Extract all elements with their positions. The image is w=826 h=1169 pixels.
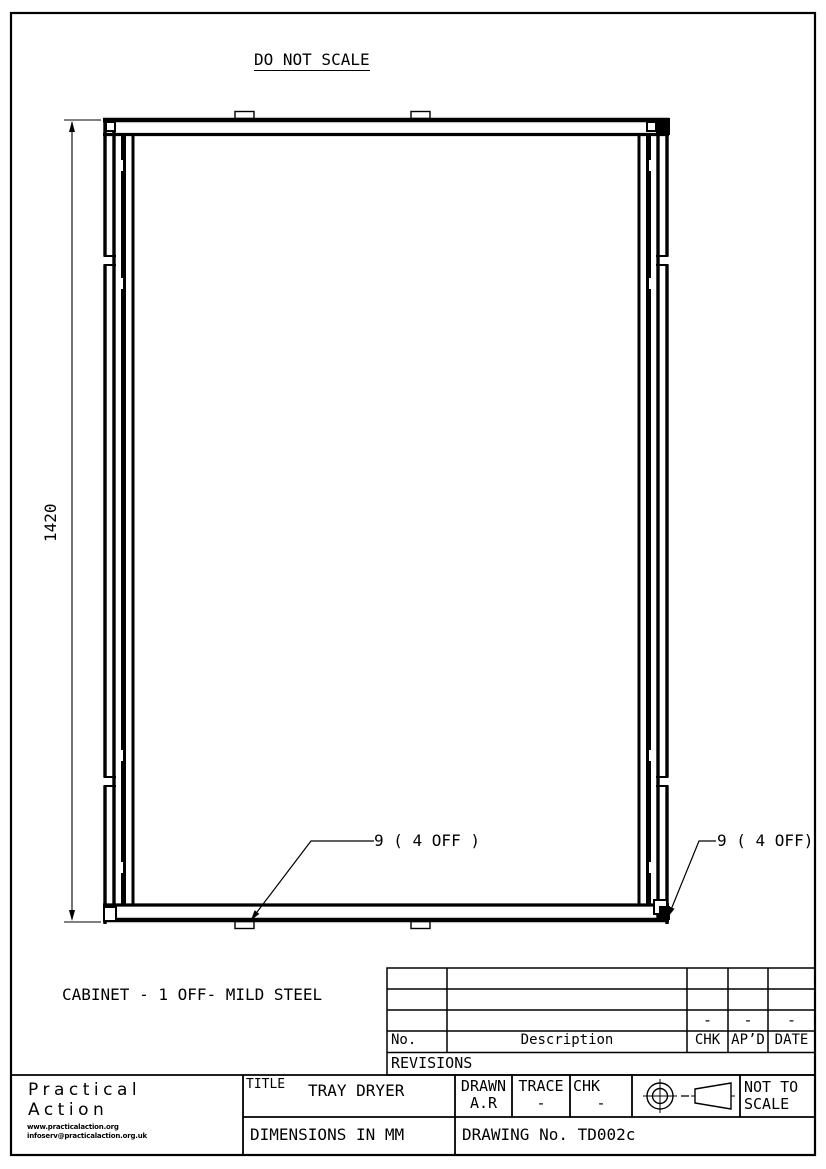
scale-note-line2: SCALE [744, 1096, 789, 1113]
part-caption: CABINET - 1 OFF- MILD STEEL [62, 986, 322, 1004]
callout-right-text: 9 ( 4 OFF) [717, 832, 813, 850]
title-label: TITLE [246, 1078, 285, 1092]
callout-left-text: 9 ( 4 OFF ) [374, 832, 480, 850]
org-name-line1: Practical [28, 1081, 141, 1100]
org-email: infoserv@practicalaction.org.uk [27, 1133, 147, 1141]
revisions-col-chk: CHK [687, 1033, 728, 1048]
do-not-scale-note: DO NOT SCALE [254, 51, 370, 71]
corner-gussets [104, 122, 670, 921]
revisions-col-date: DATE [768, 1033, 815, 1048]
revision-chk-dash: - [687, 1012, 728, 1029]
revisions-col-apd: AP’D [728, 1033, 768, 1048]
dimensions-note: DIMENSIONS IN MM [250, 1126, 404, 1144]
projection-symbol-icon [643, 1079, 735, 1113]
dimension-1420-text: 1420 [42, 503, 60, 542]
drawn-value: A.R [455, 1095, 512, 1112]
revisions-col-description: Description [447, 1033, 687, 1048]
revision-apd-dash: - [728, 1012, 768, 1029]
title-value: TRAY DRYER [308, 1082, 404, 1100]
chk-value: - [570, 1095, 632, 1112]
drawn-label: DRAWN [455, 1078, 512, 1095]
dimension-1420 [64, 120, 101, 922]
revisions-label: REVISIONS [391, 1055, 472, 1072]
drawing-number: DRAWING No. TD002c [462, 1126, 635, 1144]
org-url: www.practicalaction.org [27, 1124, 119, 1132]
right-post [639, 118, 670, 924]
trace-value: - [512, 1095, 570, 1112]
drawing-sheet: DO NOT SCALE 1420 9 ( 4 OFF ) 9 ( 4 OFF)… [0, 0, 826, 1169]
chk-label: CHK [573, 1078, 600, 1095]
org-name-line2: Action [28, 1101, 108, 1120]
left-post [104, 118, 134, 924]
revision-date-dash: - [768, 1012, 815, 1029]
fixing-tabs [235, 112, 430, 929]
trace-label: TRACE [512, 1078, 570, 1095]
leader-left [251, 841, 374, 920]
revisions-col-no: No. [391, 1033, 416, 1048]
cabinet-front-view [103, 112, 670, 929]
post-notches [120, 160, 653, 873]
leader-right [668, 841, 716, 917]
scale-note-line1: NOT TO [744, 1079, 798, 1096]
